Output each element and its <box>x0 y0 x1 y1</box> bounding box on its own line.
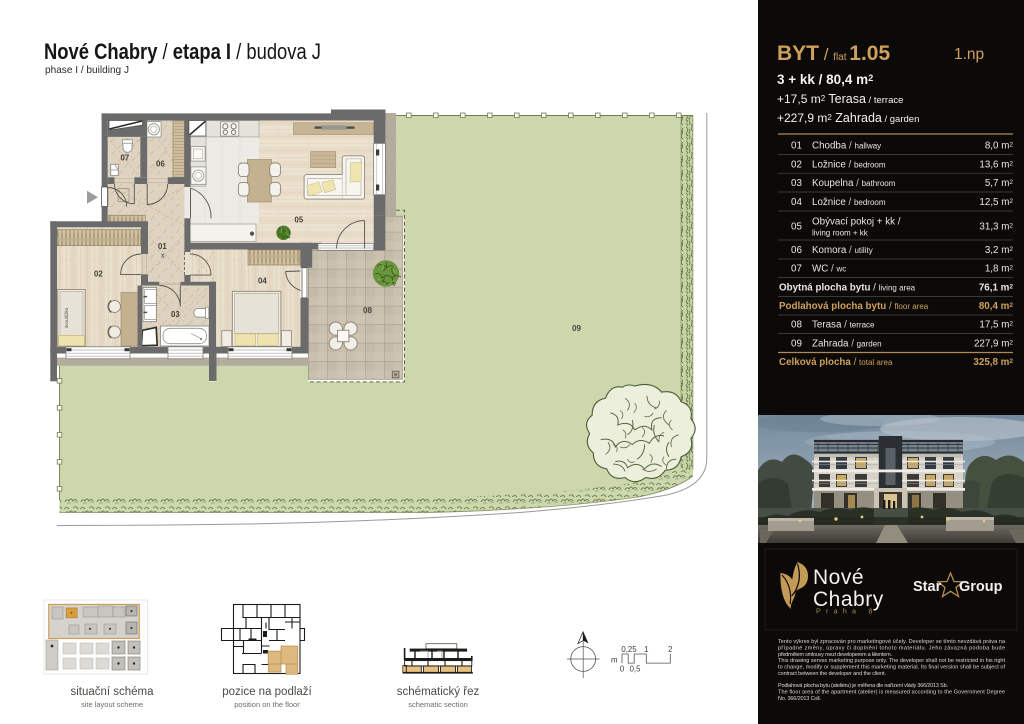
svg-text:12,5 m2: 12,5 m2 <box>979 197 1013 208</box>
svg-text:Celková plocha / total area: Celková plocha / total area <box>779 357 893 368</box>
svg-text:04: 04 <box>791 197 802 208</box>
svg-text:1.np: 1.np <box>954 46 984 63</box>
svg-text:0,25: 0,25 <box>621 645 637 654</box>
svg-text:m: m <box>611 656 618 665</box>
svg-text:x: x <box>161 253 165 260</box>
svg-text:05: 05 <box>295 216 304 225</box>
svg-text:13,6 m2: 13,6 m2 <box>979 159 1013 170</box>
svg-text:76,1 m2: 76,1 m2 <box>979 283 1014 294</box>
svg-text:site layout scheme: site layout scheme <box>81 700 143 709</box>
svg-text:09: 09 <box>791 339 802 350</box>
svg-text:to change, modify or supplemen: to change, modify or supplement this mar… <box>778 665 1005 671</box>
svg-text:Group: Group <box>959 579 1003 595</box>
svg-text:situační schéma: situační schéma <box>70 686 154 698</box>
svg-text:06: 06 <box>791 245 802 256</box>
svg-text:Tento výkres byl zpracován pro: Tento výkres byl zpracován pro marketing… <box>778 639 1006 645</box>
svg-text:contract between the developer: contract between the developer and the c… <box>778 671 886 677</box>
svg-text:Ložnice / bedroom: Ložnice / bedroom <box>812 159 886 170</box>
svg-text:Nové: Nové <box>813 566 864 589</box>
svg-text:phase I / building J: phase I / building J <box>45 64 129 76</box>
svg-text:Obývací pokoj + kk /: Obývací pokoj + kk / <box>812 217 901 228</box>
svg-text:Obytná plocha bytu / living ar: Obytná plocha bytu / living area <box>779 283 916 294</box>
svg-text:8,0 m2: 8,0 m2 <box>985 141 1014 152</box>
svg-text:living room + kk: living room + kk <box>812 229 869 238</box>
svg-text:07: 07 <box>121 154 130 163</box>
svg-text:06: 06 <box>156 160 165 169</box>
svg-text:07: 07 <box>791 264 802 275</box>
svg-text:Praha 8: Praha 8 <box>816 607 878 616</box>
svg-text:+227,9 m2 Zahrada / garden: +227,9 m2 Zahrada / garden <box>777 111 919 125</box>
svg-text:2: 2 <box>668 645 672 654</box>
svg-text:Podlahová plocha bytu / floor: Podlahová plocha bytu / floor area <box>779 301 929 312</box>
svg-text:05: 05 <box>791 222 802 233</box>
svg-text:Ložnice / bedroom: Ložnice / bedroom <box>812 197 886 208</box>
svg-text:1,8 m2: 1,8 m2 <box>985 264 1014 275</box>
svg-text:08: 08 <box>791 320 802 331</box>
svg-text:17,5 m2: 17,5 m2 <box>979 320 1013 331</box>
svg-text:3,2 m2: 3,2 m2 <box>985 245 1014 256</box>
svg-text:1: 1 <box>644 645 648 654</box>
svg-text:This drawing serves marketing: This drawing serves marketing purpose on… <box>778 658 1005 664</box>
svg-text:Chodba / hallway: Chodba / hallway <box>812 141 881 152</box>
svg-text:3 + kk / 80,4 m2: 3 + kk / 80,4 m2 <box>777 72 873 87</box>
svg-text:případné změny, úpravy či dopl: případné změny, úpravy či doplnění tohot… <box>778 646 1005 652</box>
svg-text:325,8 m2: 325,8 m2 <box>973 357 1013 368</box>
svg-text:Zahrada / garden: Zahrada / garden <box>812 339 882 350</box>
svg-text:5,7 m2: 5,7 m2 <box>985 178 1014 189</box>
svg-text:WC / wc: WC / wc <box>812 264 846 275</box>
svg-text:předmětem smlouvy mezi develop: předmětem smlouvy mezi developerem a kli… <box>778 652 892 658</box>
svg-text:schematic section: schematic section <box>408 700 468 709</box>
svg-text:01: 01 <box>158 242 167 251</box>
svg-text:+17,5 m2 Terasa / terrace: +17,5 m2 Terasa / terrace <box>777 92 903 106</box>
svg-text:0: 0 <box>620 665 625 674</box>
svg-text:Komora / utility: Komora / utility <box>812 245 873 256</box>
svg-text:227,9 m2: 227,9 m2 <box>974 339 1013 350</box>
svg-text:Nové Chabry / etapa I / budova: Nové Chabry / etapa I / budova J <box>44 39 321 64</box>
svg-text:Star: Star <box>913 579 942 595</box>
svg-text:Terasa / terrace: Terasa / terrace <box>812 320 875 331</box>
svg-text:04: 04 <box>258 277 267 286</box>
svg-text:03: 03 <box>171 310 180 319</box>
svg-text:02: 02 <box>94 270 103 279</box>
svg-text:Podlahová plocha bytu (ateliér: Podlahová plocha bytu (ateliéru) je měře… <box>778 683 948 689</box>
svg-text:position on the floor: position on the floor <box>234 700 300 709</box>
svg-text:No. 366/2013 Coll.: No. 366/2013 Coll. <box>778 696 821 702</box>
svg-text:Koupelna / bathroom: Koupelna / bathroom <box>812 178 896 189</box>
svg-text:schématický řez: schématický řez <box>397 686 480 698</box>
svg-text:80,4 m2: 80,4 m2 <box>979 301 1014 312</box>
svg-text:02: 02 <box>791 159 802 170</box>
svg-text:08: 08 <box>363 306 373 315</box>
svg-text:pozice na podlaží: pozice na podlaží <box>222 686 312 698</box>
svg-text:The floor area of the apartmen: The floor area of the apartment (atelier… <box>778 690 1005 696</box>
svg-text:31,3 m2: 31,3 m2 <box>979 222 1013 233</box>
svg-text:dvoulůžko: dvoulůžko <box>63 307 69 328</box>
svg-text:03: 03 <box>791 178 802 189</box>
svg-text:0,5: 0,5 <box>630 665 642 674</box>
svg-text:09: 09 <box>572 324 582 333</box>
svg-text:01: 01 <box>791 141 802 152</box>
